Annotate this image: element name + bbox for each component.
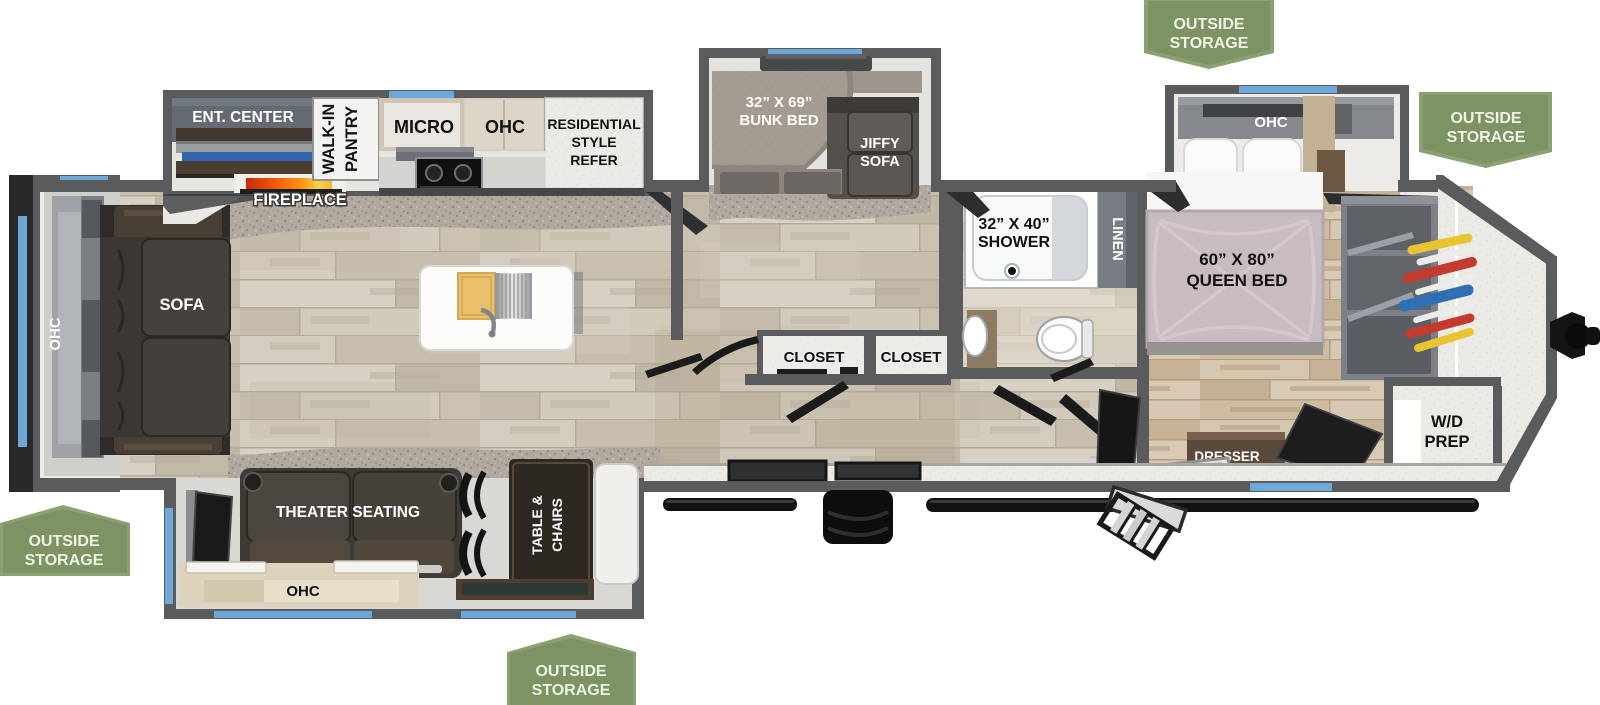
svg-text:MICRO: MICRO bbox=[394, 117, 454, 137]
svg-text:SOFA: SOFA bbox=[160, 296, 205, 314]
svg-text:JIFFY: JIFFY bbox=[860, 136, 900, 152]
svg-text:STORAGE: STORAGE bbox=[1170, 35, 1249, 52]
svg-text:OHC: OHC bbox=[1254, 114, 1288, 131]
svg-text:QUEEN BED: QUEEN BED bbox=[1186, 271, 1287, 290]
svg-text:REFER: REFER bbox=[570, 152, 617, 168]
svg-text:THEATER SEATING: THEATER SEATING bbox=[276, 504, 420, 521]
svg-text:OHC: OHC bbox=[47, 317, 64, 351]
svg-text:STORAGE: STORAGE bbox=[532, 682, 611, 699]
svg-text:CHAIRS: CHAIRS bbox=[549, 498, 565, 552]
svg-text:OHC: OHC bbox=[286, 583, 320, 600]
svg-text:BUNK BED: BUNK BED bbox=[739, 112, 818, 129]
svg-text:FIREPLACE: FIREPLACE bbox=[253, 191, 347, 209]
svg-text:32” X 69”: 32” X 69” bbox=[746, 94, 813, 111]
svg-text:CLOSET: CLOSET bbox=[784, 349, 845, 366]
svg-text:TABLE &: TABLE & bbox=[529, 495, 545, 555]
svg-text:SHOWER: SHOWER bbox=[978, 234, 1050, 251]
svg-text:SOFA: SOFA bbox=[860, 154, 900, 170]
svg-text:PREP: PREP bbox=[1425, 433, 1470, 451]
svg-text:OUTSIDE: OUTSIDE bbox=[535, 663, 606, 680]
svg-text:STORAGE: STORAGE bbox=[25, 552, 104, 569]
svg-text:W/D: W/D bbox=[1431, 413, 1463, 431]
svg-text:OHC: OHC bbox=[485, 117, 525, 137]
svg-text:STORAGE: STORAGE bbox=[1447, 129, 1526, 146]
svg-text:RESIDENTIAL: RESIDENTIAL bbox=[547, 116, 641, 132]
svg-text:32” X 40”: 32” X 40” bbox=[978, 216, 1049, 233]
svg-text:STYLE: STYLE bbox=[571, 134, 616, 150]
svg-text:OUTSIDE: OUTSIDE bbox=[1450, 110, 1521, 127]
svg-text:OUTSIDE: OUTSIDE bbox=[1173, 16, 1244, 33]
svg-text:OUTSIDE: OUTSIDE bbox=[28, 533, 99, 550]
svg-text:ENT. CENTER: ENT. CENTER bbox=[192, 109, 294, 126]
svg-text:CLOSET: CLOSET bbox=[881, 349, 942, 366]
svg-text:WALK-IN: WALK-IN bbox=[320, 104, 338, 175]
svg-text:PANTRY: PANTRY bbox=[343, 106, 361, 172]
svg-text:60” X 80”: 60” X 80” bbox=[1199, 250, 1275, 269]
svg-text:LINEN: LINEN bbox=[1109, 217, 1125, 261]
